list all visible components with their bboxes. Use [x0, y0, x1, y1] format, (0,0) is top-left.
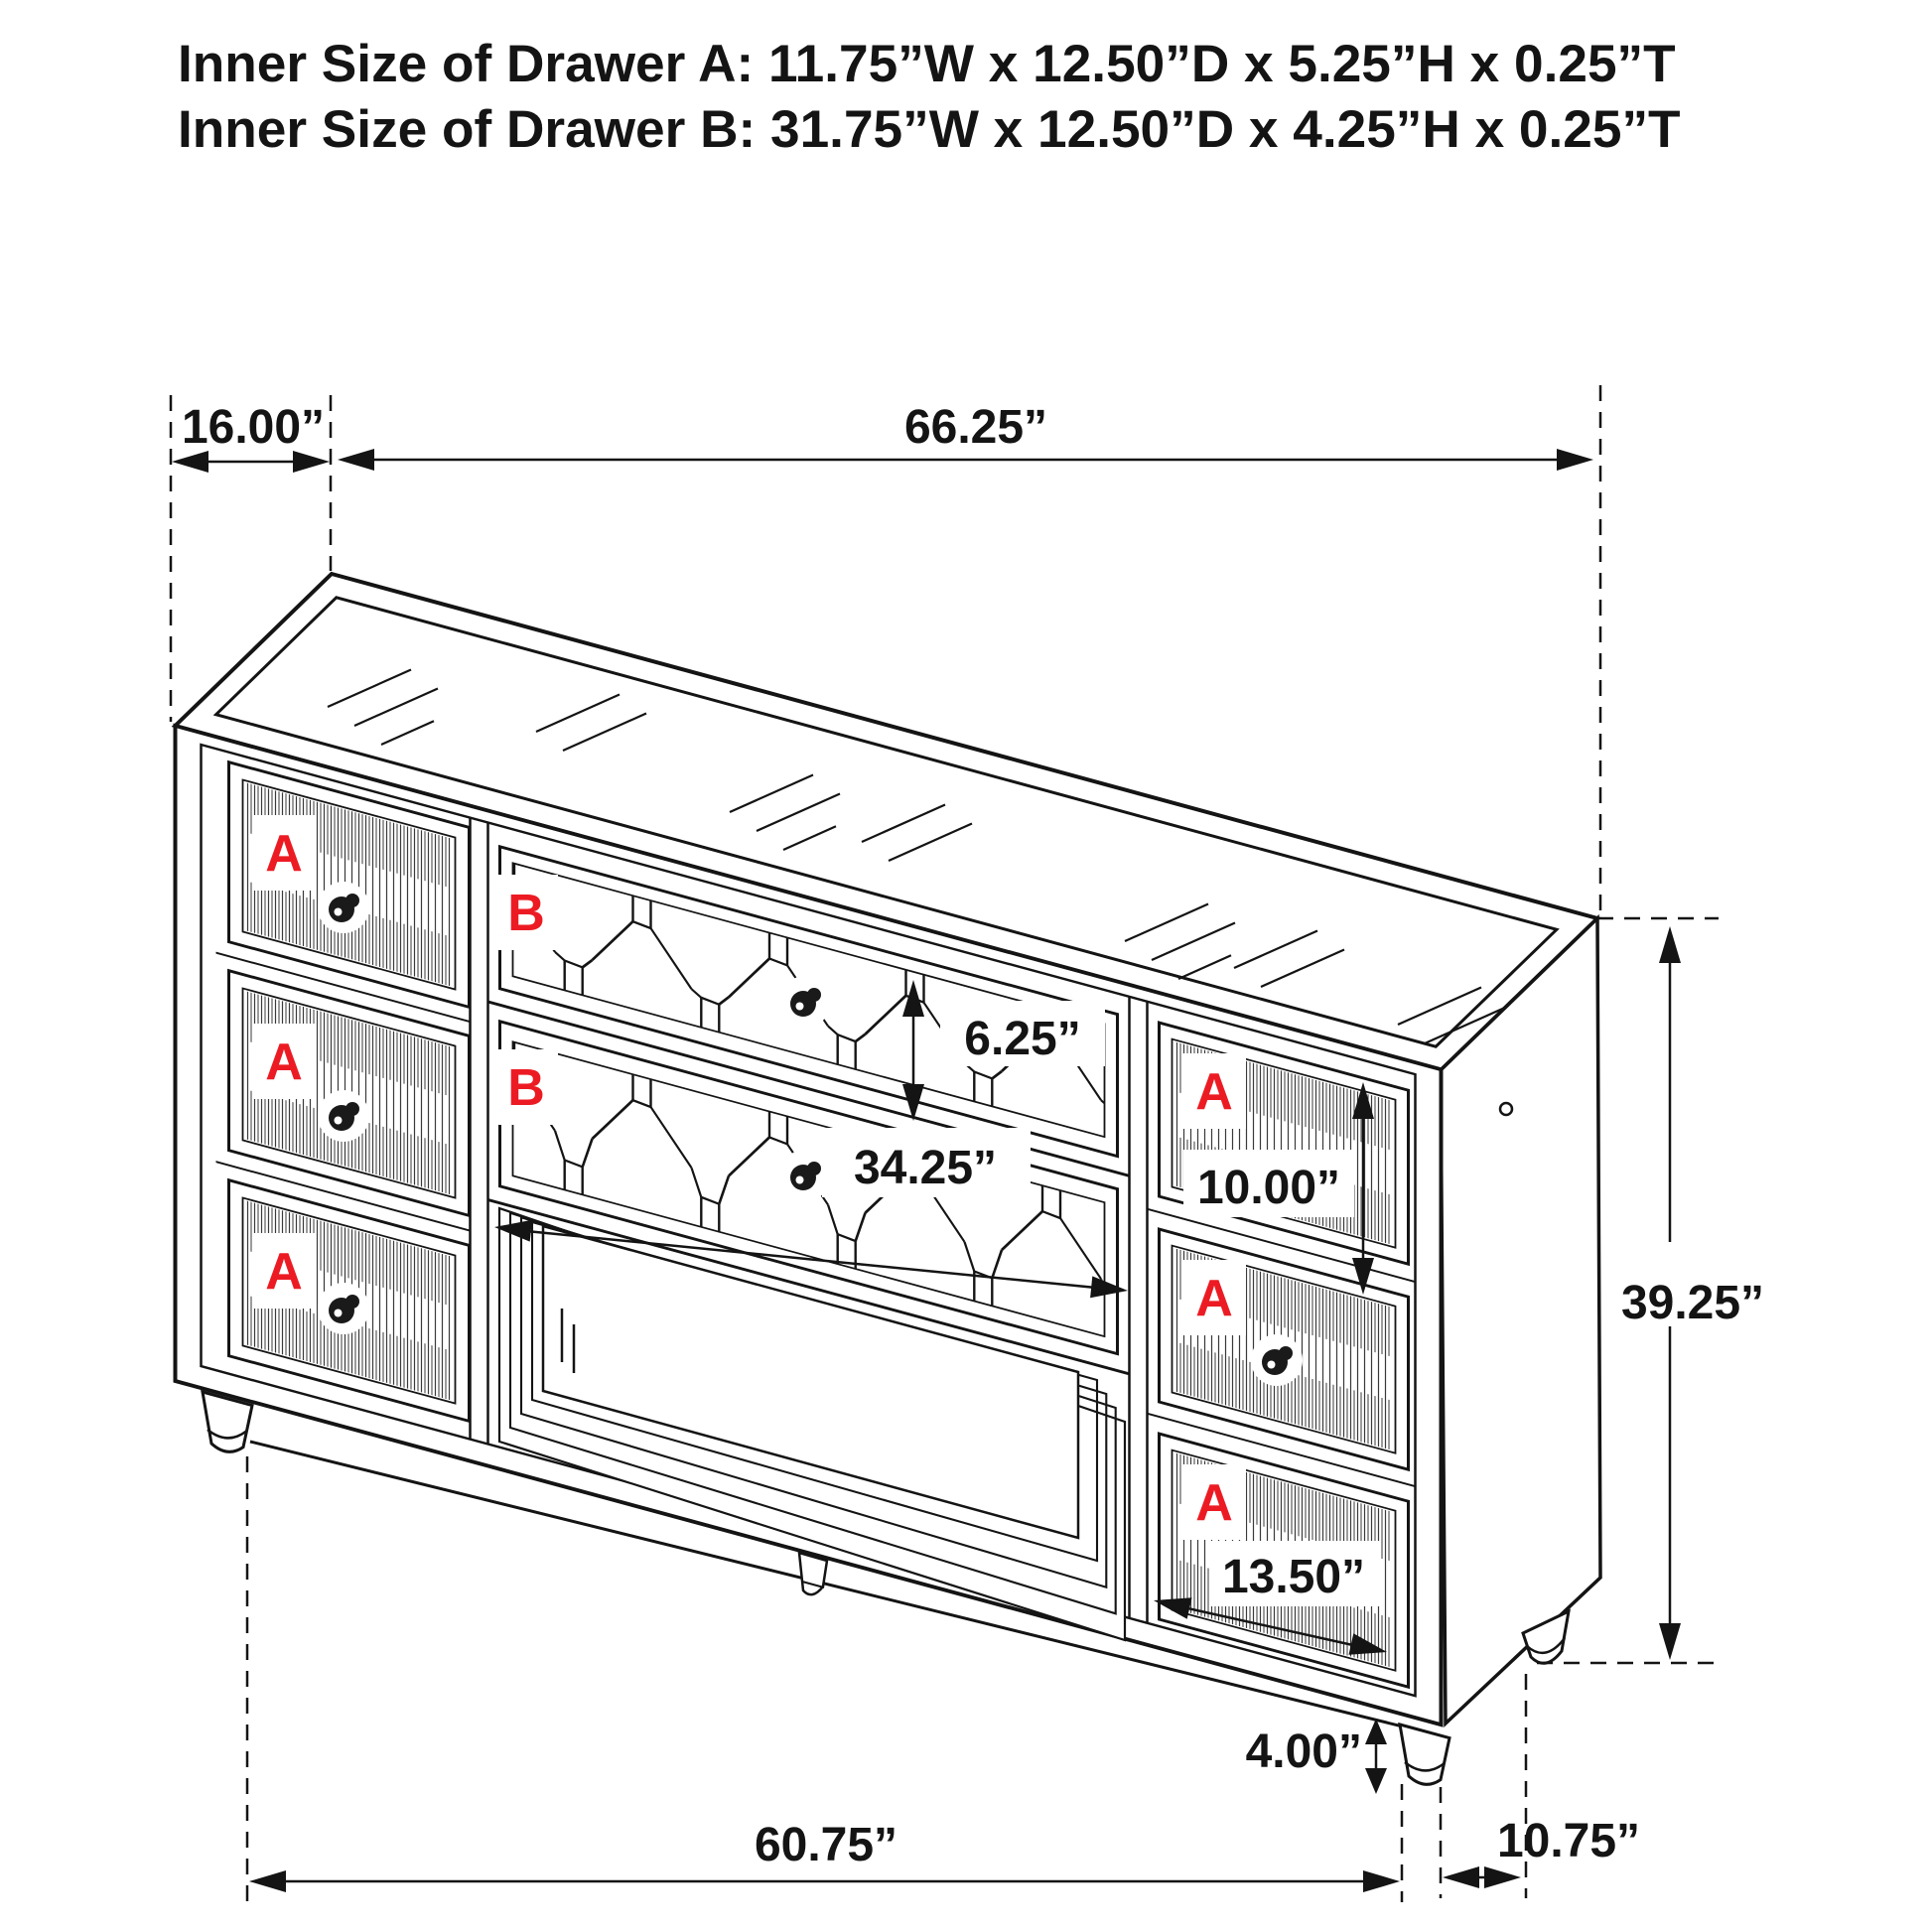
- svg-text:13.50”: 13.50”: [1222, 1551, 1365, 1603]
- svg-text:A: A: [1195, 1474, 1233, 1532]
- svg-text:39.25”: 39.25”: [1621, 1277, 1764, 1329]
- svg-text:A: A: [265, 1243, 303, 1301]
- svg-text:A: A: [265, 825, 303, 883]
- svg-text:10.00”: 10.00”: [1197, 1162, 1340, 1214]
- svg-text:B: B: [507, 1059, 545, 1117]
- svg-text:A: A: [265, 1034, 303, 1091]
- svg-text:A: A: [1195, 1063, 1233, 1121]
- svg-text:B: B: [507, 885, 545, 942]
- svg-text:34.25”: 34.25”: [854, 1142, 997, 1194]
- svg-text:10.75”: 10.75”: [1497, 1815, 1640, 1867]
- svg-text:4.00”: 4.00”: [1246, 1725, 1362, 1778]
- svg-text:Inner Size of Drawer B: 31.75”: Inner Size of Drawer B: 31.75”W x 12.50”…: [178, 100, 1681, 159]
- svg-text:6.25”: 6.25”: [964, 1013, 1080, 1065]
- svg-text:16.00”: 16.00”: [182, 401, 325, 454]
- svg-text:60.75”: 60.75”: [755, 1819, 897, 1871]
- svg-text:A: A: [1195, 1270, 1233, 1327]
- svg-text:Inner Size of Drawer A: 11.75”: Inner Size of Drawer A: 11.75”W x 12.50”…: [178, 35, 1676, 93]
- svg-text:66.25”: 66.25”: [904, 401, 1047, 454]
